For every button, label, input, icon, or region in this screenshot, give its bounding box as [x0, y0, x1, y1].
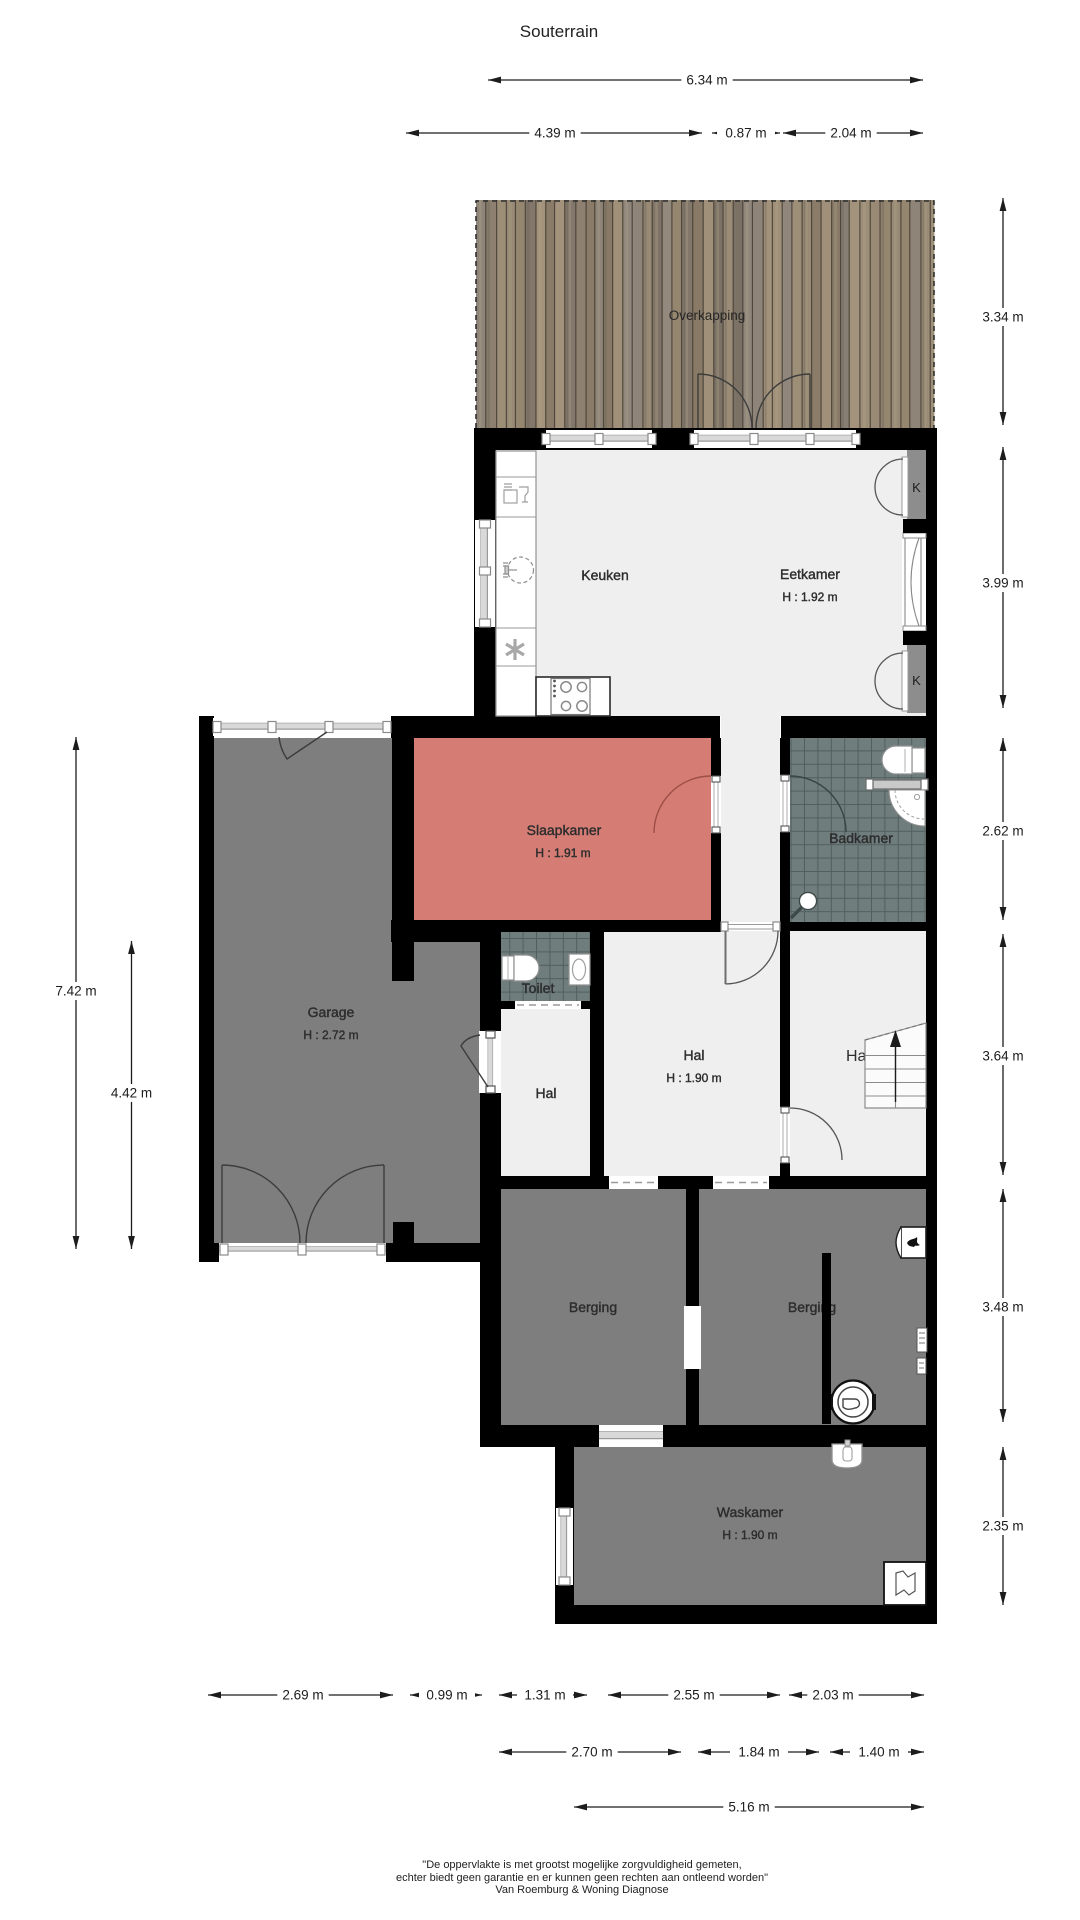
svg-text:Eetkamer: Eetkamer — [780, 566, 840, 582]
svg-text:2.04 m: 2.04 m — [830, 126, 871, 141]
svg-text:K: K — [912, 673, 921, 688]
svg-text:Toilet: Toilet — [522, 980, 555, 996]
svg-text:Berging: Berging — [569, 1299, 617, 1315]
svg-text:Hal: Hal — [683, 1047, 704, 1063]
svg-text:5.16 m: 5.16 m — [728, 1800, 769, 1815]
svg-text:H : 1.90 m: H : 1.90 m — [666, 1071, 721, 1085]
svg-text:Overkapping: Overkapping — [669, 308, 746, 323]
svg-text:K: K — [912, 480, 921, 495]
svg-text:Garage: Garage — [308, 1004, 355, 1020]
svg-text:3.48 m: 3.48 m — [982, 1300, 1023, 1315]
svg-text:4.39 m: 4.39 m — [534, 126, 575, 141]
svg-text:2.55 m: 2.55 m — [673, 1688, 714, 1703]
svg-text:"De oppervlakte is met grootst: "De oppervlakte is met grootst mogelijke… — [422, 1859, 741, 1871]
svg-text:3.34 m: 3.34 m — [982, 310, 1023, 325]
svg-text:Slaapkamer: Slaapkamer — [527, 822, 602, 838]
svg-text:7.42 m: 7.42 m — [55, 984, 96, 999]
svg-text:3.99 m: 3.99 m — [982, 576, 1023, 591]
svg-text:0.99 m: 0.99 m — [426, 1688, 467, 1703]
svg-text:0.87 m: 0.87 m — [725, 126, 766, 141]
svg-text:2.62 m: 2.62 m — [982, 824, 1023, 839]
svg-text:6.34 m: 6.34 m — [686, 73, 727, 88]
svg-text:Souterrain: Souterrain — [520, 22, 598, 41]
svg-text:1.31 m: 1.31 m — [524, 1688, 565, 1703]
svg-text:4.42 m: 4.42 m — [111, 1086, 152, 1101]
svg-text:H : 1.91 m: H : 1.91 m — [535, 846, 590, 860]
svg-text:H : 2.72 m: H : 2.72 m — [303, 1028, 358, 1042]
svg-text:Keuken: Keuken — [581, 567, 628, 583]
svg-text:2.69 m: 2.69 m — [282, 1688, 323, 1703]
svg-text:2.35 m: 2.35 m — [982, 1519, 1023, 1534]
svg-text:Badkamer: Badkamer — [829, 830, 893, 846]
svg-text:2.70 m: 2.70 m — [571, 1745, 612, 1760]
svg-text:echter biedt geen garantie en: echter biedt geen garantie en er kunnen … — [396, 1872, 768, 1884]
svg-text:1.84 m: 1.84 m — [738, 1745, 779, 1760]
svg-text:Waskamer: Waskamer — [717, 1504, 784, 1520]
svg-text:3.64 m: 3.64 m — [982, 1049, 1023, 1064]
svg-text:H : 1.90 m: H : 1.90 m — [722, 1528, 777, 1542]
svg-text:Van Roemburg & Woning Diagnose: Van Roemburg & Woning Diagnose — [495, 1884, 668, 1896]
svg-text:Hal: Hal — [535, 1085, 556, 1101]
svg-text:2.03 m: 2.03 m — [812, 1688, 853, 1703]
svg-text:H : 1.92 m: H : 1.92 m — [782, 590, 837, 604]
svg-text:1.40 m: 1.40 m — [858, 1745, 899, 1760]
